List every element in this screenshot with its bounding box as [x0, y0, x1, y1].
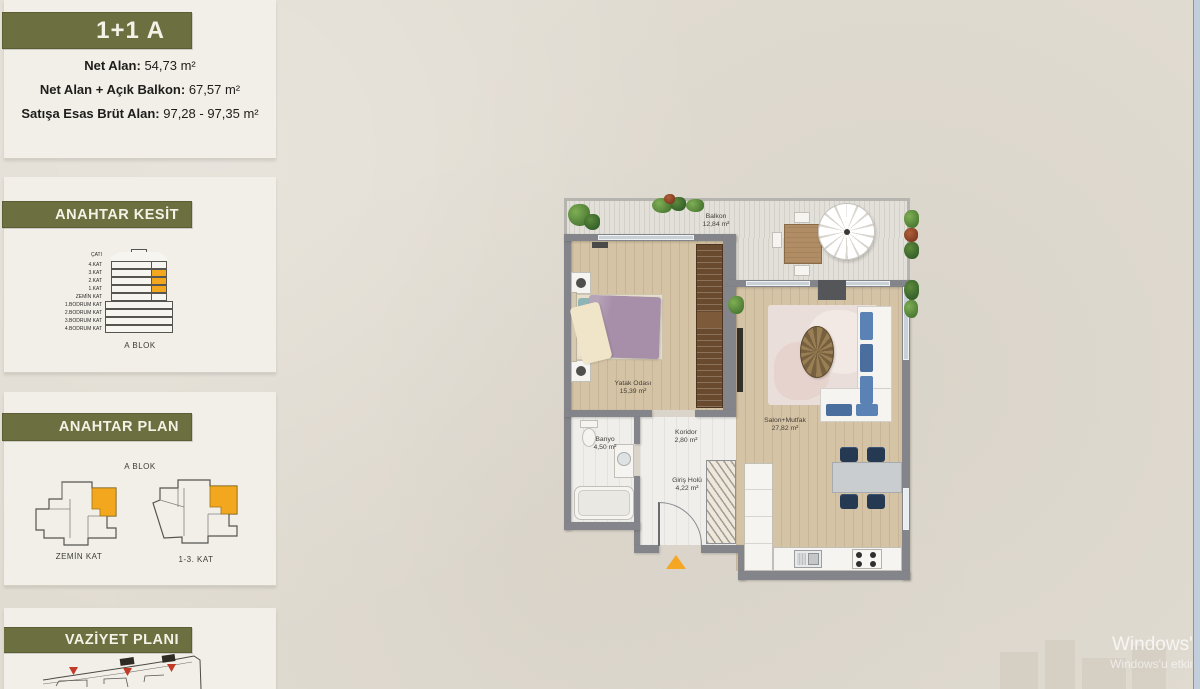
- burner: [856, 552, 862, 558]
- toilet-tank: [580, 420, 598, 428]
- stat-value: 97,28 - 97,35 m²: [163, 106, 258, 121]
- highlighted-floor: [151, 278, 166, 284]
- outdoor-chair: [794, 212, 810, 223]
- building-section-diagram: ÇATI 4.KAT 3.KAT 2.KAT 1.KAT ZEMİN KAT 1…: [56, 249, 216, 333]
- living-room-window: [844, 281, 890, 286]
- bedroom-window: [598, 235, 694, 240]
- key-section-title: ANAHTAR KESİT: [55, 207, 179, 223]
- floor-plan: Balkon 12,84 m² Yatak Odası 15,39 m² Ban…: [556, 192, 914, 588]
- bathtub-inner: [578, 490, 630, 516]
- sofa-cushion: [860, 344, 873, 372]
- wardrobe-shelf: [697, 312, 722, 328]
- site-structure: [162, 654, 176, 663]
- room-area: 2,80 m²: [674, 437, 697, 445]
- stat-net-balkon: Net Alan + Açık Balkon: 67,57 m²: [4, 82, 276, 97]
- room-label-salon-mutfak: Salon+Mutfak 27,82 m²: [764, 417, 806, 433]
- room-name: Banyo: [593, 436, 616, 444]
- outdoor-chair: [794, 265, 810, 276]
- floor-label: ZEMİN KAT: [56, 293, 105, 301]
- balcony-railing: [564, 198, 567, 236]
- plant: [686, 199, 704, 212]
- stat-net-alan: Net Alan: 54,73 m²: [4, 58, 276, 73]
- room-area: 12,84 m²: [703, 221, 730, 229]
- block-label: A BLOK: [4, 341, 276, 350]
- wall: [701, 545, 742, 553]
- room-label-yatak-odasi: Yatak Odası 15,39 m²: [615, 380, 652, 396]
- wall: [634, 417, 640, 444]
- sink-drainboard: [797, 553, 806, 565]
- kitchen-cabinets: [744, 463, 773, 571]
- stat-value: 67,57 m²: [189, 82, 240, 97]
- unit-title-banner: 1+1 A: [2, 12, 192, 49]
- windows-activation-watermark: Windows'u Et: [1112, 634, 1200, 656]
- dining-chair: [867, 494, 885, 509]
- sofa-cushion: [826, 404, 852, 416]
- room-name: Balkon: [703, 213, 730, 221]
- unit-stats: Net Alan: 54,73 m² Net Alan + Açık Balko…: [4, 58, 276, 130]
- room-area: 4,50 m²: [593, 444, 616, 452]
- scrollbar[interactable]: [1193, 0, 1200, 689]
- outdoor-chair: [772, 232, 782, 248]
- room-label-giris-holu: Giriş Holü 4,22 m²: [672, 477, 702, 493]
- plant: [904, 242, 919, 259]
- room-label-koridor: Koridor 2,80 m²: [674, 429, 697, 445]
- site-structure: [120, 657, 135, 666]
- burner: [870, 552, 876, 558]
- skyline-silhouette: [1000, 652, 1038, 689]
- site-plan-card: VAZİYET PLANI: [4, 608, 276, 689]
- key-section-card: ANAHTAR KESİT ÇATI 4.KAT 3.KAT 2.KAT 1.K…: [4, 177, 276, 373]
- site-plan-drawing: [4, 654, 276, 689]
- room-name: Salon+Mutfak: [764, 417, 806, 425]
- umbrella-pole: [844, 229, 850, 235]
- room-area: 27,82 m²: [764, 425, 806, 433]
- wall: [564, 234, 571, 530]
- lamp: [576, 278, 586, 288]
- kitchen-counter: [773, 547, 902, 571]
- wall: [634, 476, 640, 545]
- column-box: [818, 280, 846, 300]
- floor-label: 2.BODRUM KAT: [56, 309, 105, 317]
- key-plan-card: ANAHTAR PLAN A BLOK ZEMİN KAT 1-3. KAT: [4, 392, 276, 586]
- dining-table: [832, 462, 902, 493]
- stat-label: Net Alan:: [84, 58, 141, 73]
- floor-label: 3.BODRUM KAT: [56, 317, 105, 325]
- windows-activation-watermark-sub: Windows'u etkinleş: [1110, 657, 1200, 671]
- room-name: Koridor: [674, 429, 697, 437]
- key-plan-zemin-kat: [30, 476, 132, 550]
- room-name: Yatak Odası: [615, 380, 652, 388]
- highlighted-floor: [151, 270, 166, 276]
- stat-label: Satışa Esas Brüt Alan:: [21, 106, 159, 121]
- plant: [904, 280, 919, 300]
- entrance-marker: [666, 555, 686, 569]
- wall: [634, 545, 659, 553]
- dining-chair: [840, 447, 858, 462]
- plant: [904, 300, 918, 318]
- coffee-table: [800, 326, 834, 378]
- floor-label: 2.KAT: [56, 277, 105, 285]
- plan-label-1-3: 1-3. KAT: [179, 555, 214, 564]
- site-marker: [69, 667, 78, 675]
- sofa-cushion: [856, 404, 878, 416]
- stat-label: Net Alan + Açık Balkon:: [40, 82, 185, 97]
- plant: [904, 228, 918, 242]
- highlighted-unit: [92, 488, 116, 516]
- plant: [904, 210, 919, 228]
- site-marker: [167, 664, 176, 672]
- floor-label: 4.KAT: [56, 261, 105, 269]
- block-label: A BLOK: [4, 462, 276, 471]
- burner: [870, 561, 876, 567]
- plant: [664, 194, 675, 204]
- plan-label-zemin: ZEMİN KAT: [56, 552, 103, 561]
- dining-chair: [840, 494, 858, 509]
- wall: [564, 410, 652, 417]
- sofa-cushion: [860, 376, 873, 404]
- site-plan-title: VAZİYET PLANI: [65, 632, 179, 648]
- key-plan-banner: ANAHTAR PLAN: [2, 413, 192, 441]
- floor-label: 4.BODRUM KAT: [56, 325, 105, 333]
- room-name: Giriş Holü: [672, 477, 702, 485]
- key-plan-title: ANAHTAR PLAN: [59, 419, 179, 435]
- floor-label: 1.KAT: [56, 285, 105, 293]
- plant: [728, 296, 744, 314]
- dining-chair: [867, 447, 885, 462]
- brochure-page: 1+1 A Net Alan: 54,73 m² Net Alan + Açık…: [0, 0, 1200, 689]
- unit-title: 1+1 A: [96, 17, 165, 44]
- tv-unit: [737, 328, 743, 392]
- site-plan-banner: VAZİYET PLANI: [4, 627, 192, 653]
- outdoor-table: [784, 224, 822, 264]
- unit-info-card: 1+1 A Net Alan: 54,73 m² Net Alan + Açık…: [4, 0, 276, 159]
- floor-label: 1.BODRUM KAT: [56, 301, 105, 309]
- key-section-banner: ANAHTAR KESİT: [2, 201, 192, 228]
- room-label-balkon: Balkon 12,84 m²: [703, 213, 730, 229]
- bathroom-sink: [617, 452, 631, 466]
- wall-radiator: [592, 242, 608, 248]
- wall: [695, 410, 736, 417]
- highlighted-floor: [151, 286, 166, 292]
- shoe-closet: [706, 460, 736, 544]
- floor-label: 3.KAT: [56, 269, 105, 277]
- key-plan-1-3-kat: [144, 476, 258, 550]
- wall: [738, 571, 910, 580]
- living-room-window: [746, 281, 810, 286]
- sofa-cushion: [860, 312, 873, 340]
- plant: [584, 214, 600, 230]
- room-label-banyo: Banyo 4,50 m²: [593, 436, 616, 452]
- burner: [856, 561, 862, 567]
- skyline-silhouette: [1045, 640, 1075, 689]
- stat-value: 54,73 m²: [144, 58, 195, 73]
- balcony-railing: [564, 198, 910, 201]
- room-area: 4,22 m²: [672, 485, 702, 493]
- highlighted-unit: [210, 486, 237, 514]
- floor-label: ÇATI: [56, 249, 105, 261]
- dining-window: [903, 488, 909, 530]
- room-area: 15,39 m²: [615, 388, 652, 396]
- lamp: [576, 366, 586, 376]
- wall: [564, 522, 640, 530]
- stat-brut-alan: Satışa Esas Brüt Alan: 97,28 - 97,35 m²: [4, 106, 276, 121]
- sink-basin: [808, 553, 819, 565]
